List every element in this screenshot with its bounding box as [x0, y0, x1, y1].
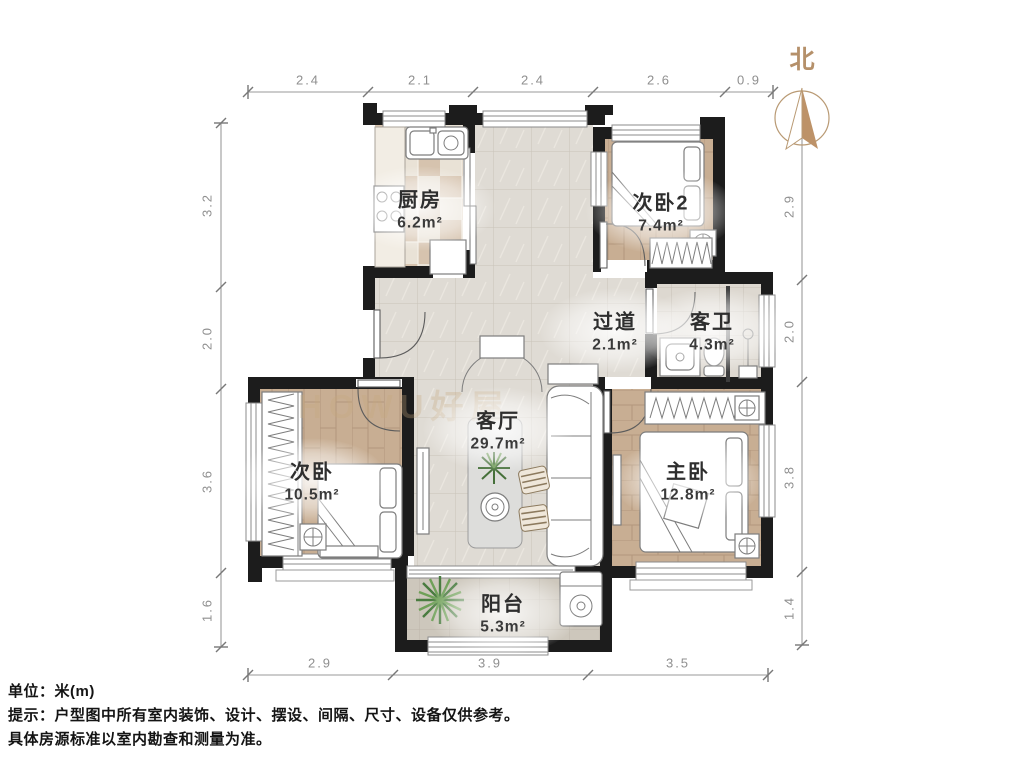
room-label-master: 主卧 12.8m²: [660, 456, 715, 505]
master-fan-icon-1: [735, 396, 759, 420]
room-label-guest-bath: 客卫 4.3m²: [689, 306, 735, 355]
room-name: 厨房: [397, 184, 443, 213]
north-label: 北: [789, 40, 814, 76]
tip-note-2: 具体房源标准以室内勘查和测量为准。: [8, 728, 520, 752]
ottoman-icon-2: [518, 504, 549, 532]
kitchen-sink-icon: [406, 127, 468, 159]
tip-note-1: 提示：户型图中所有室内装饰、设计、摆设、间隔、尺寸、设备仅供参考。: [8, 704, 520, 728]
master-bottom-window: [630, 562, 752, 590]
bedroom2-window: [612, 125, 700, 141]
room-area: 5.3m²: [480, 619, 526, 637]
hall-top-window: [483, 111, 587, 127]
bedroom-fan-icon: [300, 524, 326, 550]
tv-stand-icon: [417, 448, 429, 534]
room-label-kitchen: 厨房 6.2m²: [397, 184, 443, 233]
room-label-balcony: 阳台 5.3m²: [480, 588, 526, 637]
room-name: 过道: [592, 306, 638, 335]
coffee-table-icon: [481, 493, 509, 521]
dim-label-top-3: 2.6: [647, 73, 671, 88]
master-fan-icon-2: [735, 534, 759, 558]
room-name: 客卫: [689, 306, 735, 335]
dim-label-top-1: 2.1: [408, 73, 432, 88]
room-area: 2.1m²: [592, 337, 638, 355]
footer-notes: 单位：米(m) 提示：户型图中所有室内装饰、设计、摆设、间隔、尺寸、设备仅供参考…: [8, 680, 520, 752]
dim-label-right-3: 1.4: [782, 596, 797, 620]
room-label-bedroom2: 次卧2 7.4m²: [632, 187, 689, 236]
ottoman-icon-1: [518, 465, 550, 494]
dim-label-left-3: 1.6: [200, 598, 215, 622]
unit-note: 单位：米(m): [8, 680, 520, 704]
room-area: 10.5m²: [284, 487, 339, 505]
room-label-hallway: 过道 2.1m²: [592, 306, 638, 355]
room-name: 阳台: [480, 588, 526, 617]
room-area: 4.3m²: [689, 337, 735, 355]
dim-label-right-0: 2.9: [782, 194, 797, 218]
room-label-bedroom: 次卧 10.5m²: [284, 456, 339, 505]
dim-label-right-1: 2.0: [782, 319, 797, 343]
room-name: 主卧: [660, 456, 715, 485]
room-area: 6.2m²: [397, 215, 443, 233]
room-label-living: 客厅 29.7m²: [470, 405, 525, 454]
dim-label-left-2: 3.6: [200, 469, 215, 493]
dim-label-left-1: 2.0: [200, 326, 215, 350]
dim-label-right-2: 3.8: [782, 465, 797, 489]
dim-label-top-0: 2.4: [296, 73, 320, 88]
room-area: 29.7m²: [470, 436, 525, 454]
room-name: 次卧2: [632, 187, 689, 216]
room-area: 12.8m²: [660, 487, 715, 505]
dim-label-left-0: 3.2: [200, 193, 215, 217]
kitchen-window: [383, 111, 445, 127]
dim-label-bottom-0: 2.9: [308, 656, 332, 671]
dim-label-top-4: 0.9: [737, 73, 761, 88]
floorplan-page: HOWU好屋 北 厨房 6.2m² 次卧2 7.4m² 过道 2.1m² 客卫 …: [0, 0, 1024, 768]
dim-label-bottom-1: 3.9: [478, 656, 502, 671]
room-area: 7.4m²: [632, 218, 689, 236]
room-name: 次卧: [284, 456, 339, 485]
dim-label-top-2: 2.4: [521, 73, 545, 88]
dim-label-bottom-2: 3.5: [666, 656, 690, 671]
room-name: 客厅: [470, 405, 525, 434]
